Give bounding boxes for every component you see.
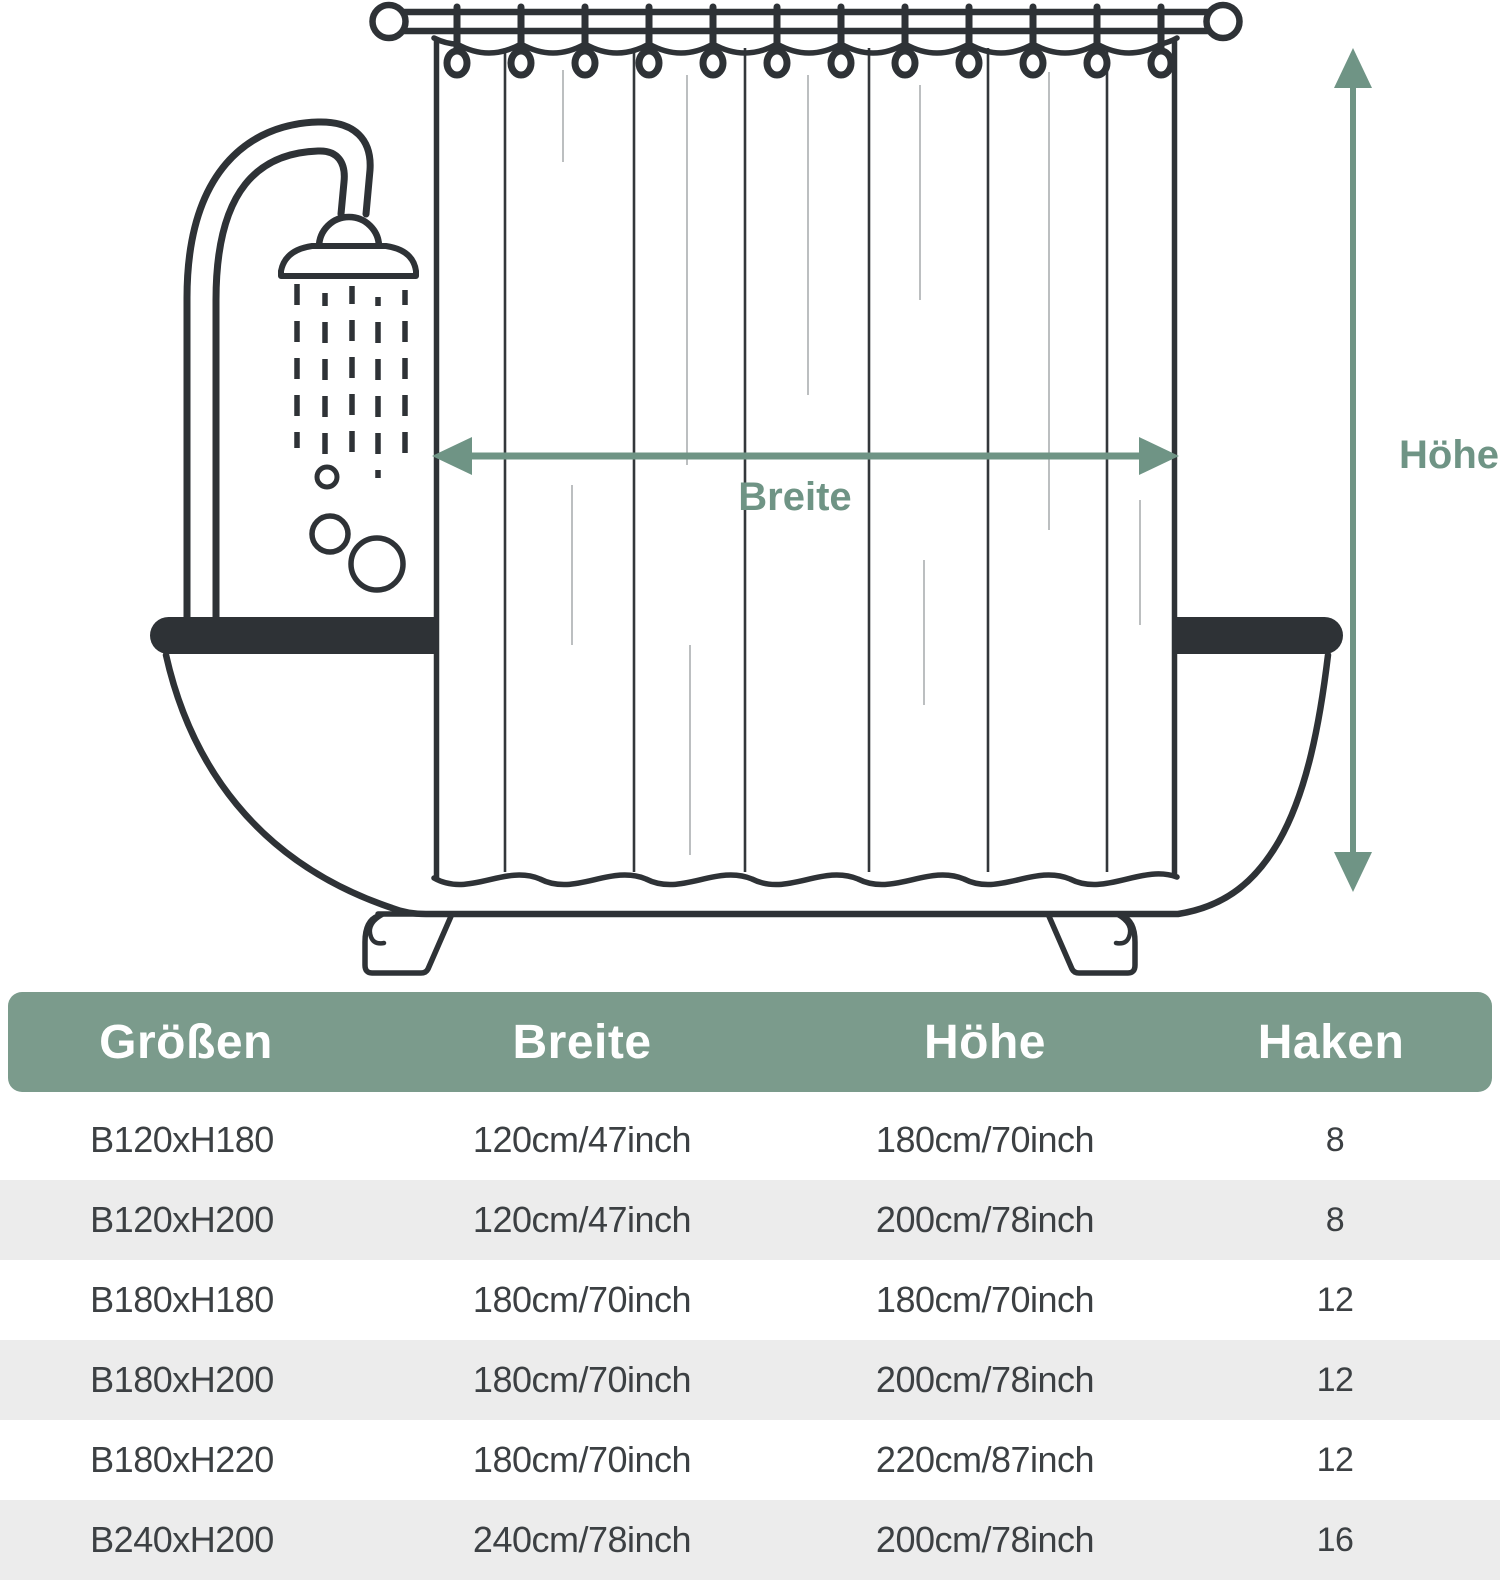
hook-ring <box>1087 51 1107 75</box>
height-label: Höhe <box>1399 433 1499 477</box>
size-table-rows: B120xH180120cm/47inch180cm/70inch8B120xH… <box>0 1100 1500 1580</box>
table-row: B180xH180180cm/70inch180cm/70inch12 <box>0 1260 1500 1340</box>
hooks-cell: 8 <box>1170 1201 1500 1240</box>
bubble-small <box>317 467 337 487</box>
width-cell: 120cm/47inch <box>364 1199 800 1241</box>
height-arrow: Höhe <box>1334 48 1499 892</box>
size-table-header: Größen Breite Höhe Haken <box>8 992 1492 1092</box>
width-cell: 120cm/47inch <box>364 1119 800 1161</box>
height-cell: 200cm/78inch <box>800 1359 1170 1401</box>
hook-ring <box>895 51 915 75</box>
hook-ring <box>959 51 979 75</box>
header-sizes: Größen <box>8 1015 364 1070</box>
rod-cap-right <box>1207 5 1240 38</box>
size-cell: B180xH200 <box>0 1359 364 1401</box>
width-cell: 180cm/70inch <box>364 1439 800 1481</box>
bubble-medium <box>312 516 348 552</box>
table-row: B180xH220180cm/70inch220cm/87inch12 <box>0 1420 1500 1500</box>
shower-head-cap <box>281 246 416 276</box>
hooks-cell: 12 <box>1170 1281 1500 1320</box>
header-width: Breite <box>364 1015 800 1070</box>
size-cell: B240xH200 <box>0 1519 364 1561</box>
hooks-cell: 12 <box>1170 1441 1500 1480</box>
size-cell: B120xH180 <box>0 1119 364 1161</box>
height-cell: 220cm/87inch <box>800 1439 1170 1481</box>
table-row: B240xH200240cm/78inch200cm/78inch16 <box>0 1500 1500 1580</box>
height-cell: 180cm/70inch <box>800 1279 1170 1321</box>
curtain-rod <box>373 5 1240 38</box>
shower-head-dome <box>319 217 379 247</box>
table-row: B120xH180120cm/47inch180cm/70inch8 <box>0 1100 1500 1180</box>
hooks-cell: 16 <box>1170 1521 1500 1560</box>
size-cell: B180xH220 <box>0 1439 364 1481</box>
width-cell: 240cm/78inch <box>364 1519 800 1561</box>
hooks-cell: 12 <box>1170 1361 1500 1400</box>
hooks-cell: 8 <box>1170 1121 1500 1160</box>
water-spray <box>297 284 405 478</box>
header-height: Höhe <box>800 1015 1170 1070</box>
bathroom-diagram: Breite Höhe <box>0 0 1500 992</box>
rod-cap-left <box>373 5 406 38</box>
height-cell: 200cm/78inch <box>800 1519 1170 1561</box>
hook-ring <box>511 51 531 75</box>
shower-head-icon <box>187 122 416 618</box>
hook-ring <box>767 51 787 75</box>
bubble-large <box>351 538 403 590</box>
width-cell: 180cm/70inch <box>364 1359 800 1401</box>
hook-ring <box>1023 51 1043 75</box>
hook-ring <box>831 51 851 75</box>
size-chart-infographic: Breite Höhe Größen Breite Höhe Haken B12… <box>0 0 1500 1581</box>
width-cell: 180cm/70inch <box>364 1279 800 1321</box>
height-arrowhead-top <box>1334 48 1372 88</box>
height-cell: 200cm/78inch <box>800 1199 1170 1241</box>
header-hooks: Haken <box>1170 1015 1492 1070</box>
height-arrowhead-bottom <box>1334 852 1372 892</box>
size-cell: B180xH180 <box>0 1279 364 1321</box>
height-cell: 180cm/70inch <box>800 1119 1170 1161</box>
table-row: B120xH200120cm/47inch200cm/78inch8 <box>0 1180 1500 1260</box>
shower-curtain <box>434 38 1177 885</box>
table-row: B180xH200180cm/70inch200cm/78inch12 <box>0 1340 1500 1420</box>
hook-ring <box>639 51 659 75</box>
width-label: Breite <box>738 475 851 519</box>
hook-ring <box>703 51 723 75</box>
hook-ring <box>1151 51 1171 75</box>
hook-ring <box>575 51 595 75</box>
curtain-body <box>434 44 1177 880</box>
size-cell: B120xH200 <box>0 1199 364 1241</box>
hook-ring <box>447 51 467 75</box>
